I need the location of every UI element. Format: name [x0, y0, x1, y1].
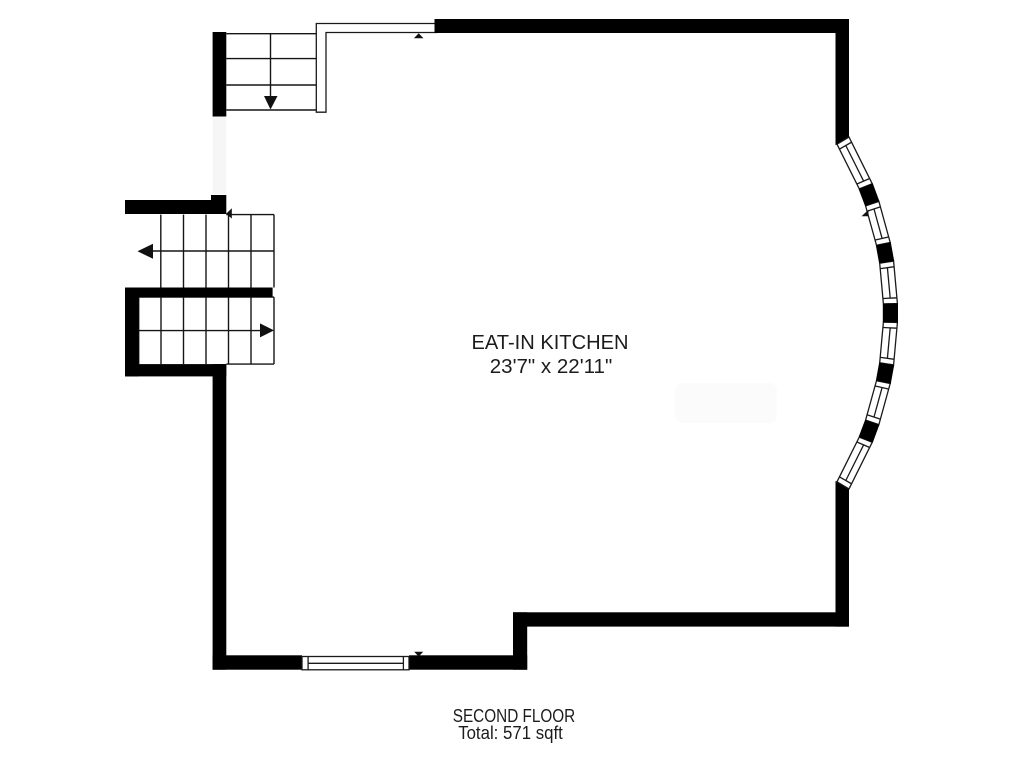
svg-text:Total: 571 sqft: Total: 571 sqft — [458, 723, 563, 743]
svg-text:EAT-IN KITCHEN: EAT-IN KITCHEN — [472, 332, 629, 354]
svg-text:23'7" x 22'11": 23'7" x 22'11" — [490, 356, 613, 378]
